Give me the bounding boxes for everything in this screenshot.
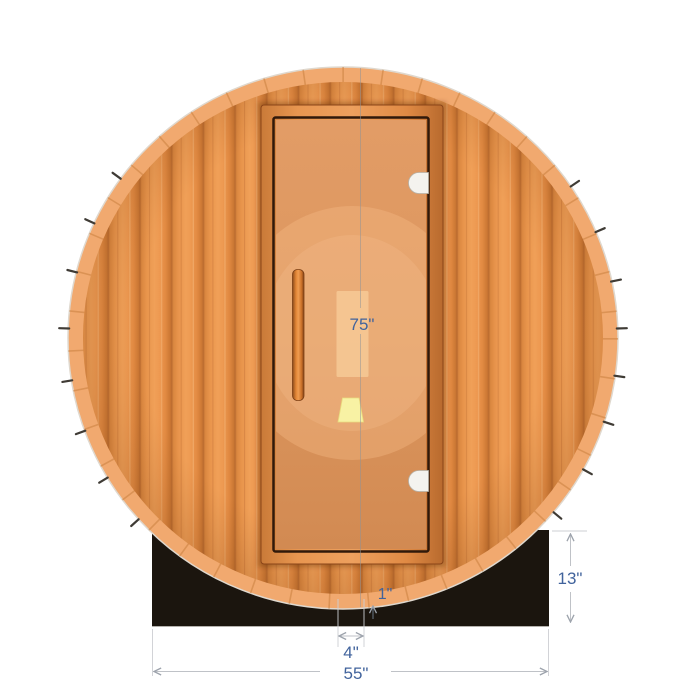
dimension-base-width-label: 55"	[344, 664, 369, 680]
dimension-thickness-label: 1"	[378, 586, 393, 603]
sauna-front-diagram: 75" 1" 4" 13" 55"	[0, 0, 680, 680]
dimension-height-label: 75"	[350, 315, 375, 334]
sauna-diagram-page: 75" 1" 4" 13" 55"	[0, 0, 680, 680]
interior-light	[338, 398, 364, 422]
sauna-door	[232, 102, 472, 567]
door-handle	[293, 270, 305, 401]
door-hinge-top	[409, 173, 429, 194]
dimension-base-height-label: 13"	[558, 569, 583, 588]
interior-window	[337, 291, 369, 377]
door-hinge-bottom	[409, 471, 429, 492]
dimension-offset-label: 4"	[343, 643, 359, 662]
